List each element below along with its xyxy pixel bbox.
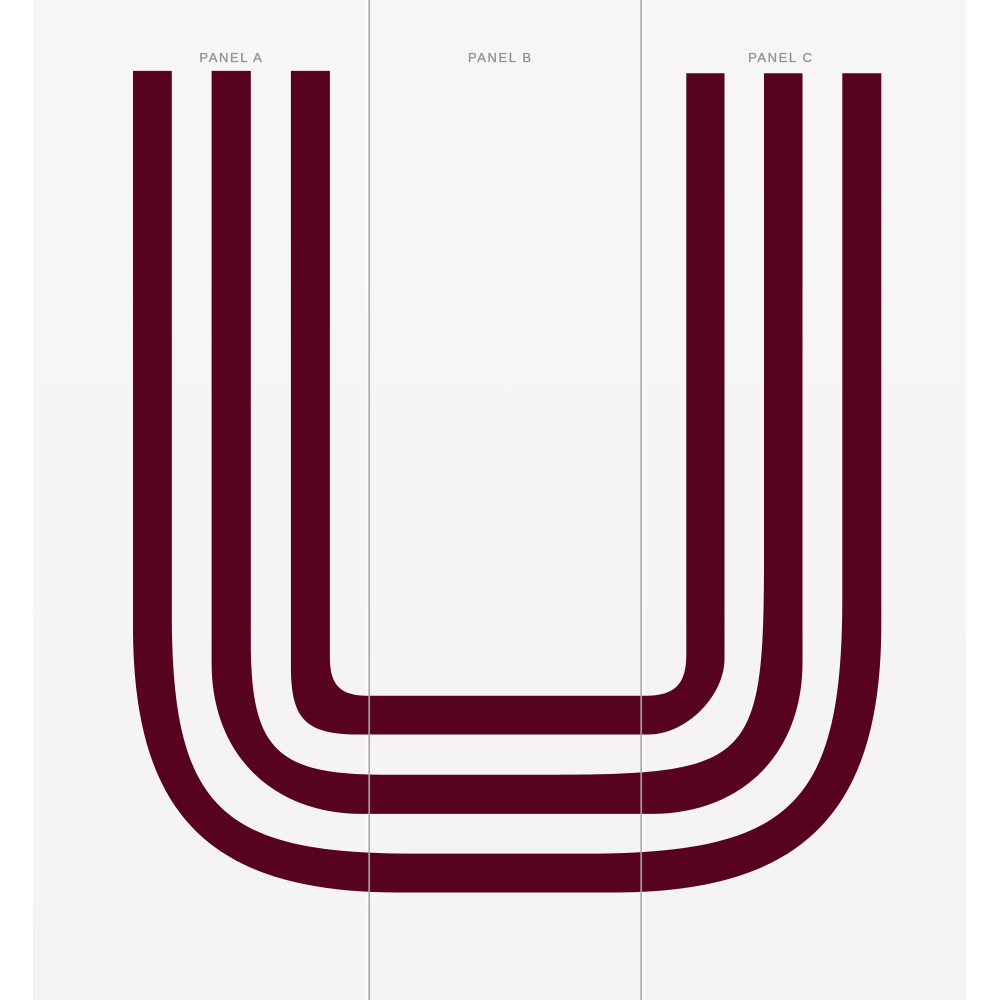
svg-text:PANEL C: PANEL C xyxy=(748,50,813,65)
svg-text:PANEL A: PANEL A xyxy=(199,50,263,65)
svg-text:PANEL B: PANEL B xyxy=(468,50,533,65)
